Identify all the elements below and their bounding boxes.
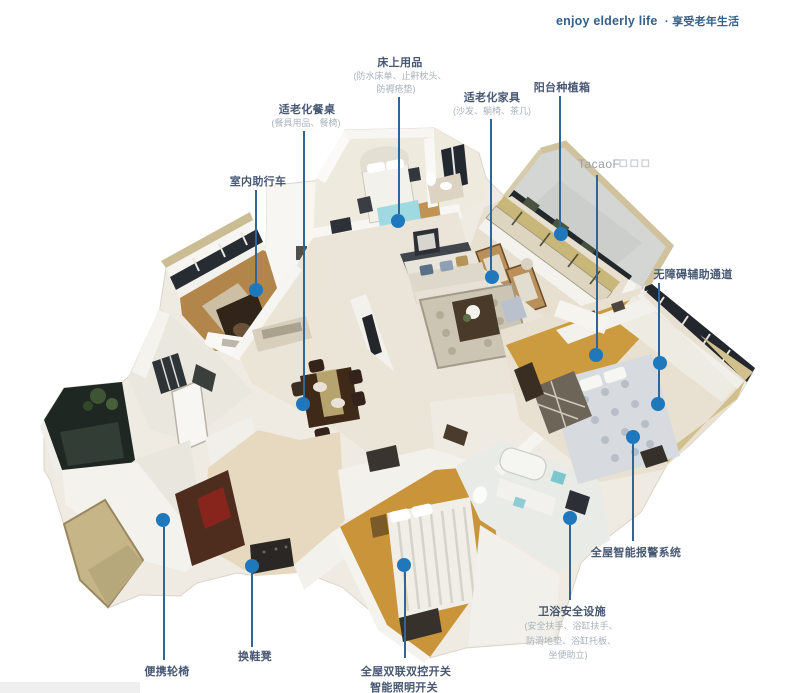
svg-text:enjoy elderly life: enjoy elderly life xyxy=(556,14,658,28)
svg-text:阳台种植箱: 阳台种植箱 xyxy=(534,80,591,94)
svg-text:卫浴安全设施: 卫浴安全设施 xyxy=(538,604,606,618)
svg-text:全屋双联双控开关: 全屋双联双控开关 xyxy=(360,664,451,678)
svg-text:床上用品: 床上用品 xyxy=(377,55,422,69)
svg-text:防褥疮垫): 防褥疮垫) xyxy=(377,83,416,94)
svg-text:适老化餐桌: 适老化餐桌 xyxy=(279,102,336,116)
svg-text:全屋智能报警系统: 全屋智能报警系统 xyxy=(590,545,681,559)
svg-text:室内助行车: 室内助行车 xyxy=(230,174,287,188)
svg-text:TacaoF: TacaoF xyxy=(578,157,620,171)
svg-text:(安全扶手、浴缸扶手、: (安全扶手、浴缸扶手、 xyxy=(525,620,618,631)
svg-text:便携轮椅: 便携轮椅 xyxy=(144,664,189,678)
svg-text:(餐具用品、餐椅): (餐具用品、餐椅) xyxy=(272,117,341,128)
svg-text:(防水床单、止鼾枕头、: (防水床单、止鼾枕头、 xyxy=(354,70,447,81)
svg-text:适老化家具: 适老化家具 xyxy=(464,90,521,104)
svg-text:坐便助立): 坐便助立) xyxy=(549,649,588,660)
svg-text:换鞋凳: 换鞋凳 xyxy=(238,649,273,663)
svg-text:· 享受老年生活: · 享受老年生活 xyxy=(665,14,739,28)
svg-text:(沙发、躺椅、茶几): (沙发、躺椅、茶几) xyxy=(453,105,531,116)
svg-text:防滑地垫、浴缸托板、: 防滑地垫、浴缸托板、 xyxy=(526,635,616,646)
svg-text:智能照明开关: 智能照明开关 xyxy=(370,680,438,693)
svg-text:无障碍辅助通道: 无障碍辅助通道 xyxy=(652,267,732,281)
